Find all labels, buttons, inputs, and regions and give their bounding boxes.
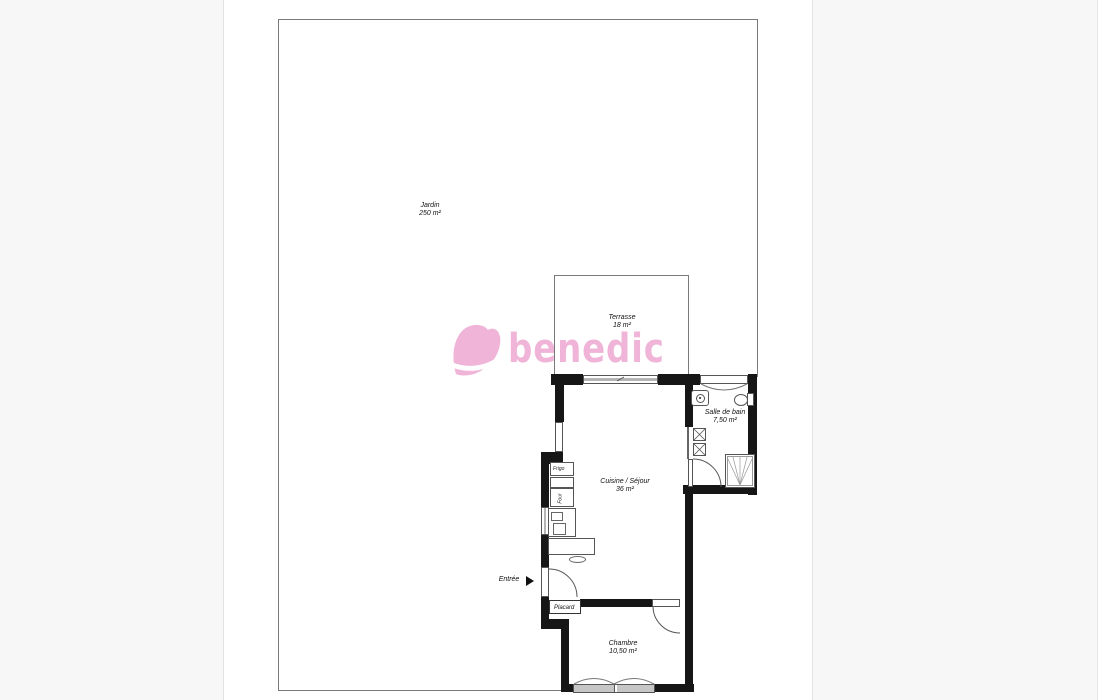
- wall-segment: [658, 374, 700, 385]
- entry-door-leaf: [541, 567, 549, 597]
- wall-segment: [561, 684, 573, 692]
- kitchen-unit: [550, 477, 574, 488]
- garden-boundary-top: [278, 19, 758, 20]
- window-symbol-left-upper: [555, 422, 563, 452]
- wall-segment: [655, 684, 694, 692]
- wall-segment: [561, 629, 569, 692]
- wall-segment: [685, 487, 693, 692]
- room-label-cuisine-sejour: Cuisine / Séjour 36 m²: [600, 478, 649, 495]
- benedic-logo-icon: [450, 320, 502, 380]
- room-label-jardin: Jardin 250 m²: [419, 202, 441, 219]
- garden-boundary-right: [757, 19, 758, 377]
- dryer-symbol: [693, 443, 706, 456]
- wall-segment: [541, 464, 549, 508]
- chambre-door-leaf: [652, 599, 680, 607]
- terrace-outline-right: [688, 275, 689, 376]
- wall-segment: [548, 619, 569, 629]
- toilet-tank-symbol: [747, 393, 754, 406]
- floorplan-screenshot: benedic Frigo Four: [0, 0, 1102, 700]
- entree-arrow-icon: [526, 576, 534, 586]
- hob-symbol: [569, 556, 586, 563]
- washbasin-symbol: [691, 390, 709, 406]
- watermark-text: benedic: [508, 329, 665, 369]
- fridge-unit: Frigo: [550, 462, 574, 476]
- garden-boundary-left: [278, 19, 279, 691]
- thin-wall-line: [687, 427, 689, 459]
- window-symbol-bathroom: [700, 375, 748, 384]
- terrace-outline-top: [554, 275, 689, 276]
- toilet-bowl-symbol: [734, 394, 748, 406]
- terrace-outline-left: [554, 275, 555, 376]
- window-symbol-terrace: [583, 375, 658, 384]
- shower-symbol: [725, 454, 755, 488]
- garden-boundary-bottom: [278, 690, 574, 691]
- wall-segment: [555, 374, 564, 422]
- sink-unit: [548, 508, 576, 537]
- right-edge-strip: [1097, 0, 1102, 700]
- counter-island: [548, 538, 595, 555]
- room-label-terrasse: Terrasse 18 m²: [609, 314, 636, 331]
- bathroom-door-leaf: [688, 459, 693, 487]
- oven-unit: Four: [550, 488, 574, 507]
- room-label-chambre: Chambre 10,50 m²: [609, 640, 638, 657]
- entree-label: Entrée: [499, 576, 520, 584]
- wall-segment: [580, 599, 652, 607]
- washer-symbol: [693, 428, 706, 441]
- window-symbol-chambre: [573, 684, 655, 693]
- room-label-salle-de-bain: Salle de bain 7,50 m²: [705, 409, 745, 426]
- placard-box: Placard: [549, 600, 581, 614]
